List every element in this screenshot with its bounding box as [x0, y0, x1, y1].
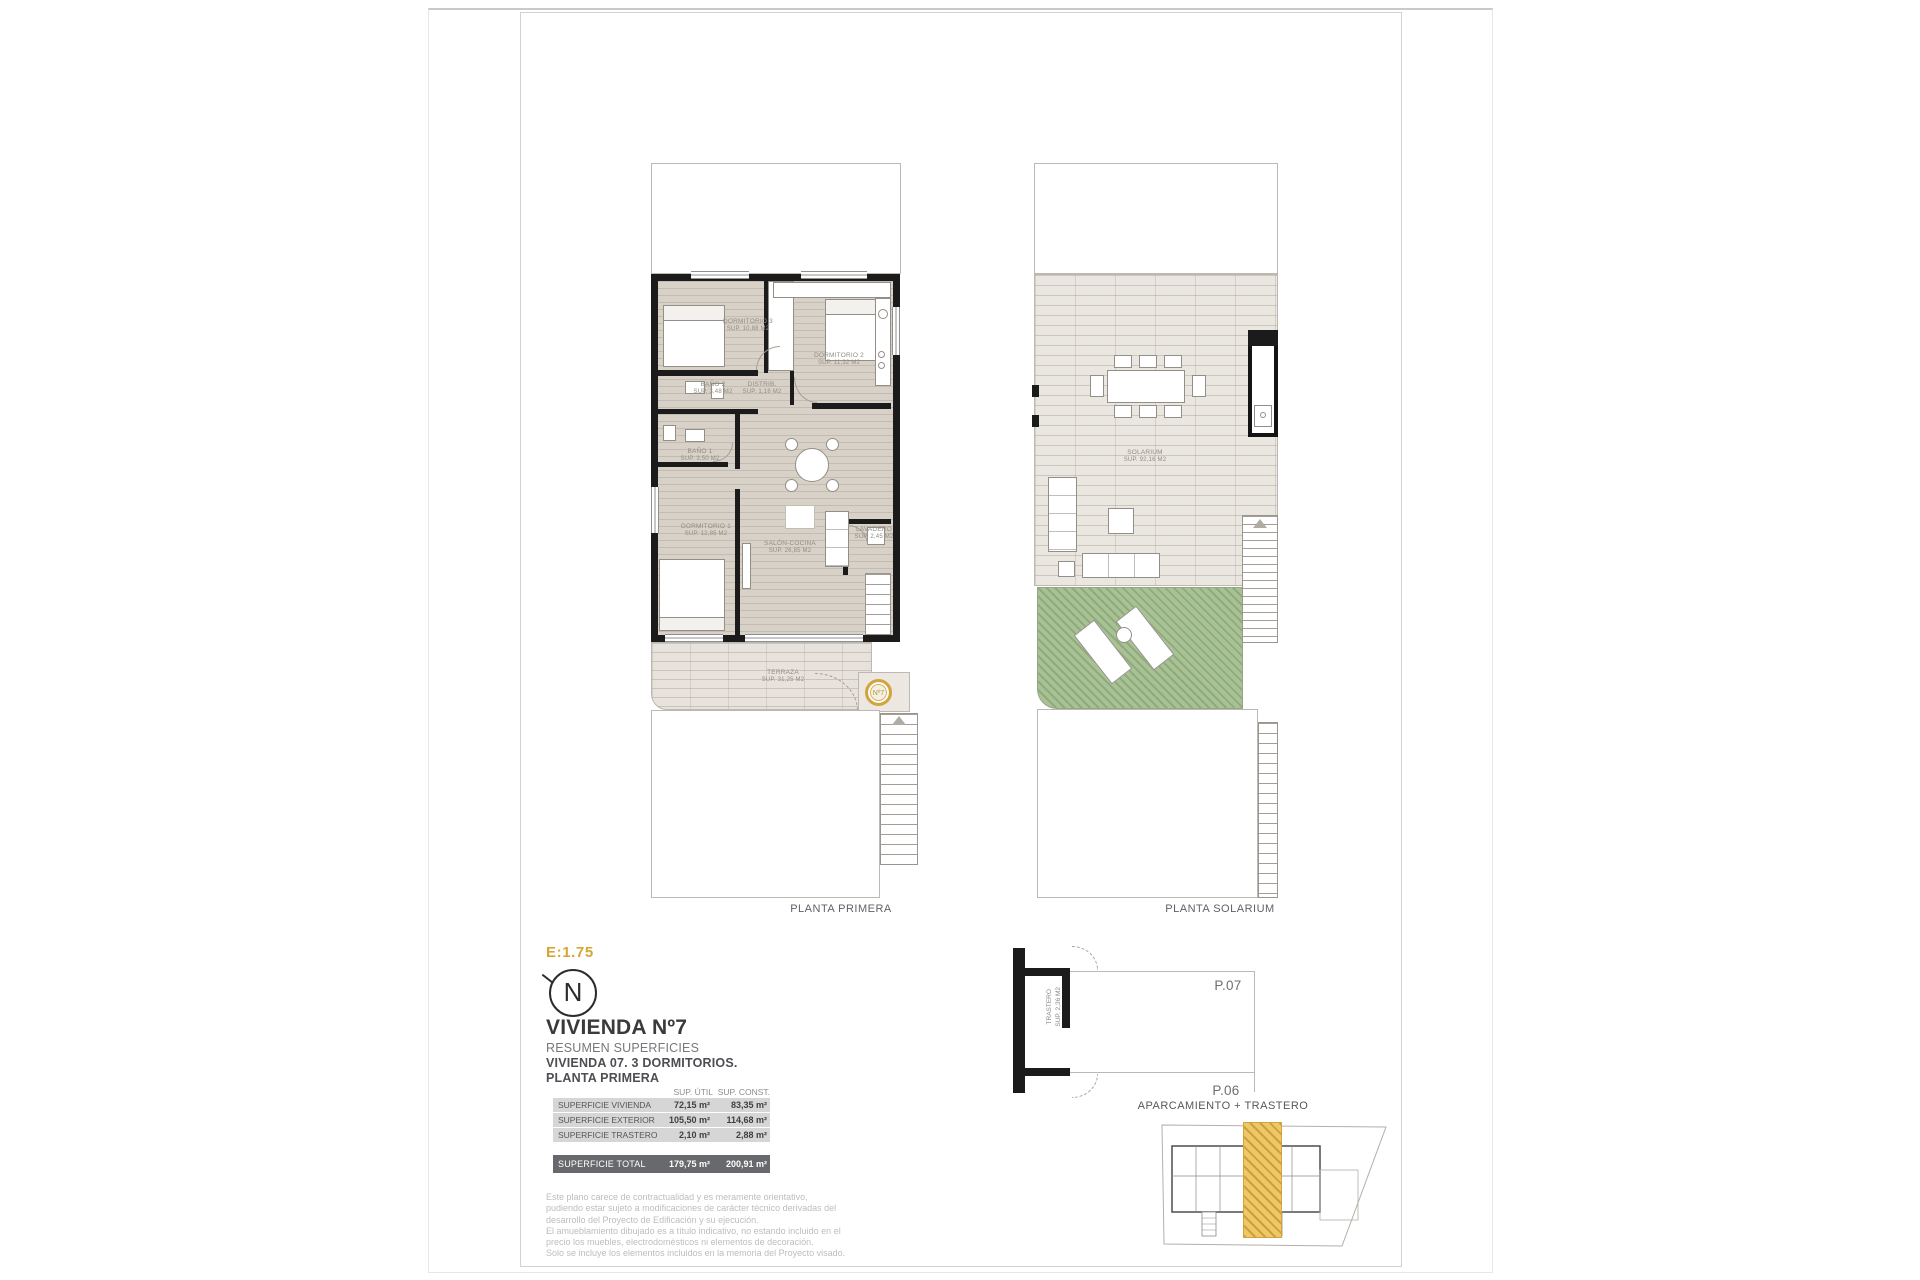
- coffee-table: [785, 505, 815, 529]
- room-label-dormitorio-1: DORMITORIO 1SUP. 12,85 M2: [649, 523, 763, 539]
- site-key-plan-drawing: [1150, 1118, 1480, 1270]
- coffee-table: [1108, 508, 1134, 534]
- chair: [1164, 405, 1182, 418]
- wall: [1013, 948, 1025, 1093]
- highlighted-unit-band: [1243, 1122, 1282, 1238]
- chair: [1114, 355, 1132, 368]
- bench-sofa: [1082, 553, 1160, 578]
- wall: [658, 409, 758, 414]
- room-label-trastero: TRASTERO SUP. 2,36 M2: [1046, 976, 1064, 1038]
- sofa: [1048, 477, 1077, 552]
- scale-label: E:1.75: [546, 944, 594, 961]
- chair: [1192, 375, 1206, 397]
- north-arrow: N: [549, 969, 597, 1017]
- chair: [1139, 355, 1157, 368]
- chair: [785, 479, 798, 492]
- room-label-solarium: SOLARIUMSUP. 92,16 M2: [1085, 449, 1205, 465]
- bed: [663, 305, 725, 367]
- stall-label-p07: P.07: [1200, 978, 1256, 993]
- plan-sheet-page: DORMITORIO 3SUP. 10,88 M2 DORMITORIO 2SU…: [0, 0, 1920, 1280]
- room-label-distribuidor: DISTRIB.SUP. 1,16 M2: [735, 381, 789, 397]
- stair-direction-arrow: [892, 716, 906, 725]
- exterior-staircase: [880, 713, 918, 865]
- toilet: [663, 425, 676, 441]
- private-patio: [651, 710, 880, 898]
- subtitle-planta: PLANTA PRIMERA: [546, 1071, 659, 1085]
- unit-number-badge: Nº7: [865, 679, 892, 706]
- window: [892, 307, 900, 355]
- floorplan-planta-solarium: SOLARIUMSUP. 92,16 M2: [1032, 159, 1282, 907]
- interior-staircase: [865, 573, 891, 635]
- chair: [826, 438, 839, 451]
- bbq-chimney-cap: [1248, 330, 1278, 346]
- wall: [735, 489, 740, 635]
- room-label-lavadero: LAVADEROSUP. 2,45 M2: [845, 526, 903, 542]
- chair: [785, 438, 798, 451]
- wall: [1032, 415, 1039, 427]
- wall: [790, 370, 794, 405]
- wall: [843, 519, 891, 524]
- side-table: [1058, 561, 1075, 577]
- sliding-door-glazing: [745, 634, 863, 642]
- wall: [1032, 385, 1039, 397]
- bed: [659, 559, 725, 631]
- exterior-staircase: [1258, 722, 1278, 898]
- wall: [658, 370, 758, 376]
- table-row: SUPERFICIE TRASTERO 2,10 m² 2,88 m²: [553, 1128, 770, 1142]
- chair: [826, 479, 839, 492]
- room-label-bano-1: BAÑO 1SUP. 3,50 M2: [659, 448, 741, 464]
- dining-table: [795, 448, 829, 482]
- chair: [1164, 355, 1182, 368]
- subtitle-vivienda: VIVIENDA 07. 3 DORMITORIOS.: [546, 1056, 738, 1070]
- surfaces-table: SUP. ÚTIL SUP. CONST. SUPERFICIE VIVIEND…: [553, 1086, 770, 1173]
- room-label-dormitorio-3: DORMITORIO 3SUP. 10,88 M2: [689, 318, 807, 334]
- caption-planta-solarium: PLANTA SOLARIUM: [1140, 903, 1300, 915]
- door-arc: [1072, 1074, 1098, 1098]
- room-label-salon-cocina: SALÓN-COCINASUP. 26,85 M2: [733, 540, 847, 556]
- stall-label-p06: P.06: [1198, 1083, 1254, 1098]
- door-arc: [1072, 946, 1098, 970]
- kitchen-sink: [878, 309, 888, 319]
- surfaces-table-header: SUP. ÚTIL SUP. CONST.: [553, 1086, 770, 1098]
- table-total-row: SUPERFICIE TOTAL 179,75 m² 200,91 m²: [553, 1155, 770, 1173]
- wall: [812, 403, 891, 409]
- stair-direction-arrow: [1253, 519, 1267, 528]
- table-row: SUPERFICIE EXTERIOR 105,50 m² 114,68 m²: [553, 1113, 770, 1127]
- window: [691, 271, 749, 279]
- open-courtyard: [1034, 163, 1278, 274]
- table-row: SUPERFICIE VIVIENDA 72,15 m² 83,35 m²: [553, 1098, 770, 1112]
- subtitle-resumen: RESUMEN SUPERFICIES: [546, 1041, 699, 1055]
- chair: [1114, 405, 1132, 418]
- header-sup-const: SUP. CONST.: [713, 1087, 770, 1097]
- room-label-dormitorio-2: DORMITORIO 2SUP. 11,32 M2: [780, 352, 898, 368]
- parking-detail: TRASTERO SUP. 2,36 M2 P.07 P.06 APARCAMI…: [1000, 940, 1300, 1125]
- window: [665, 634, 723, 642]
- caption-aparcamiento: APARCAMIENTO + TRASTERO: [1118, 1100, 1328, 1112]
- window: [801, 271, 867, 279]
- side-table: [1116, 627, 1132, 643]
- kitchen-counter: [773, 282, 891, 298]
- chair: [1090, 375, 1104, 397]
- wall: [1025, 1068, 1070, 1076]
- page-title: VIVIENDA Nº7: [546, 1016, 687, 1040]
- chair: [1139, 405, 1157, 418]
- interior-staircase: [1242, 515, 1278, 643]
- bathroom-sink: [685, 429, 705, 442]
- outdoor-dining-table: [1107, 370, 1185, 403]
- bbq-cabinet-dot: [1260, 412, 1266, 418]
- floorplan-planta-primera: DORMITORIO 3SUP. 10,88 M2 DORMITORIO 2SU…: [649, 159, 921, 907]
- disclaimer-text: Este plano carece de contractualidad y e…: [546, 1192, 846, 1260]
- site-key-plan: [1150, 1118, 1480, 1270]
- parking-stall-line: [1070, 971, 1254, 972]
- caption-planta-primera: PLANTA PRIMERA: [761, 903, 921, 915]
- lower-patio: [1037, 709, 1258, 898]
- open-courtyard: [651, 163, 901, 274]
- parking-stall-line: [1070, 1072, 1254, 1073]
- header-sup-util: SUP. ÚTIL: [659, 1087, 713, 1097]
